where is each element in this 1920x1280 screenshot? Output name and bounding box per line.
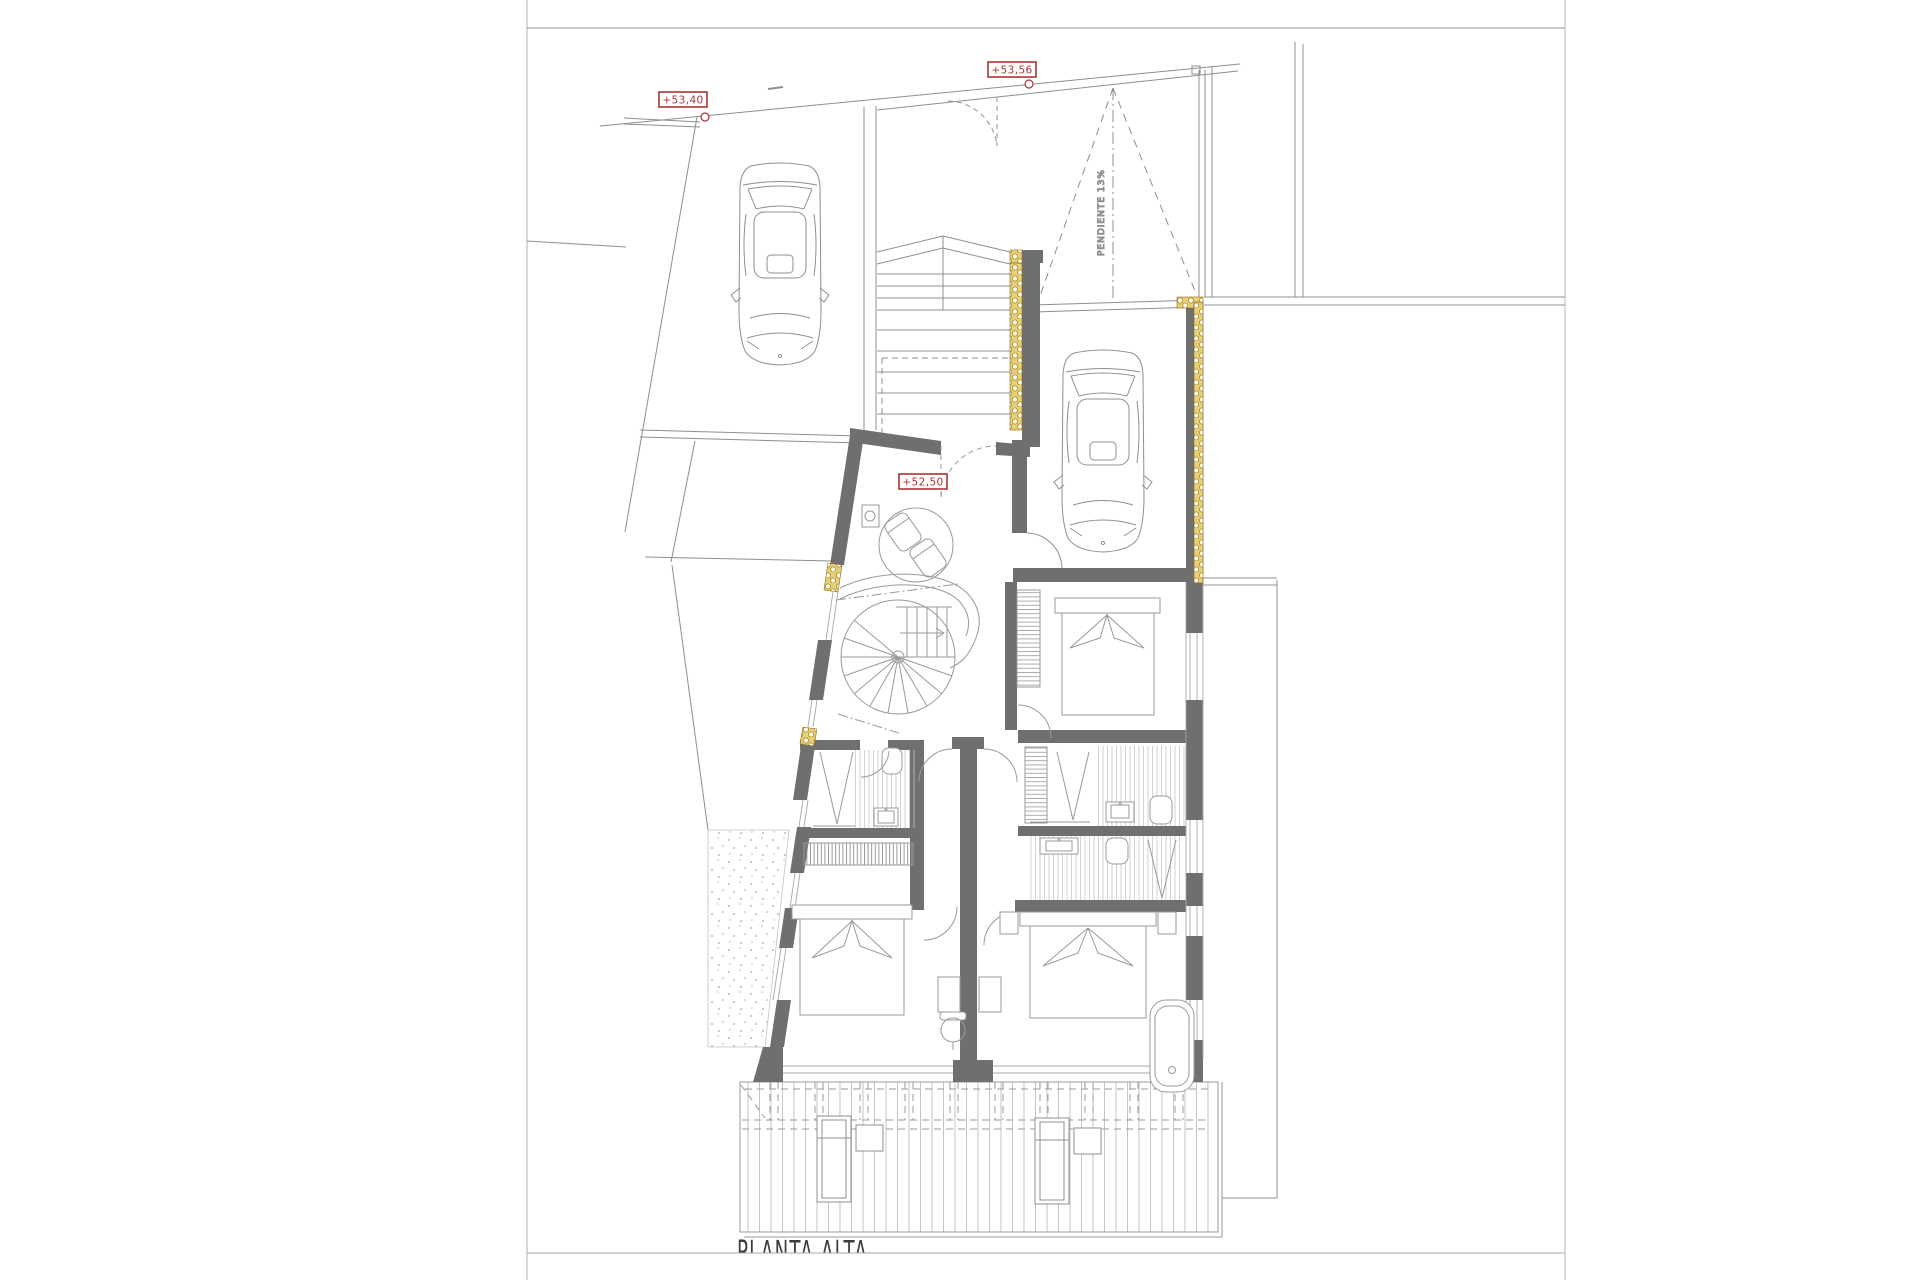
desk-chair xyxy=(940,1012,966,1020)
toilet xyxy=(1150,796,1172,824)
bedroom-2 xyxy=(979,912,1194,1092)
bedroom-1 xyxy=(1017,590,1160,715)
bed xyxy=(1030,926,1146,1018)
landing-dashed-outline xyxy=(882,358,1008,445)
site-boundary-lines xyxy=(527,28,1565,1198)
terrace-deck xyxy=(740,1082,1222,1237)
floor-plan-drawing: PENDIENTE 13% xyxy=(0,0,1920,1280)
bedroom-3 xyxy=(792,905,966,1050)
desk xyxy=(979,977,1001,1012)
slope-label: PENDIENTE 13% xyxy=(1097,169,1107,256)
car-garage xyxy=(1054,350,1152,552)
desk xyxy=(938,977,960,1012)
level-marker-a: +53,40 xyxy=(659,92,709,121)
level-marker-b: +53,56 xyxy=(988,62,1036,88)
toilet xyxy=(882,748,902,774)
bathroom-master xyxy=(1025,746,1185,826)
ramp: PENDIENTE 13% xyxy=(1033,88,1200,312)
bathroom-ensuite xyxy=(1027,836,1183,900)
floor-plan-sheet: PENDIENTE 13% xyxy=(0,0,1920,1280)
svg-text:+53,56: +53,56 xyxy=(991,65,1032,77)
bed xyxy=(800,919,904,1015)
wardrobe xyxy=(1017,590,1040,687)
side-table xyxy=(1074,1128,1101,1154)
svg-text:+52,50: +52,50 xyxy=(902,477,943,489)
nightstand xyxy=(1158,912,1176,934)
svg-text:+53,40: +53,40 xyxy=(662,95,703,107)
wardrobe xyxy=(804,843,913,865)
entry-door-swing xyxy=(941,446,996,497)
bed-headboard xyxy=(792,905,912,919)
bed-headboard xyxy=(1020,912,1156,926)
garage-door-swing xyxy=(1027,533,1062,568)
bed-headboard xyxy=(1055,598,1160,613)
shower-slope-mark xyxy=(820,752,853,824)
bathroom-left xyxy=(804,748,915,865)
exterior-stair-corridor xyxy=(864,97,1010,445)
towel-radiator xyxy=(1025,747,1047,823)
car-driveway xyxy=(731,163,829,365)
level-markers: +53,40 +53,56 +52,50 xyxy=(659,62,1036,489)
round-rug xyxy=(879,508,953,582)
gate-door-swing xyxy=(948,97,997,146)
side-table xyxy=(856,1125,883,1151)
toilet xyxy=(1106,838,1128,864)
spiral-staircase xyxy=(836,574,979,734)
bed xyxy=(1062,613,1154,715)
nightstand xyxy=(1000,912,1018,934)
entry-hall xyxy=(862,446,996,582)
level-marker-c: +52,50 xyxy=(899,474,947,489)
shower-slope-mark xyxy=(1057,752,1089,820)
